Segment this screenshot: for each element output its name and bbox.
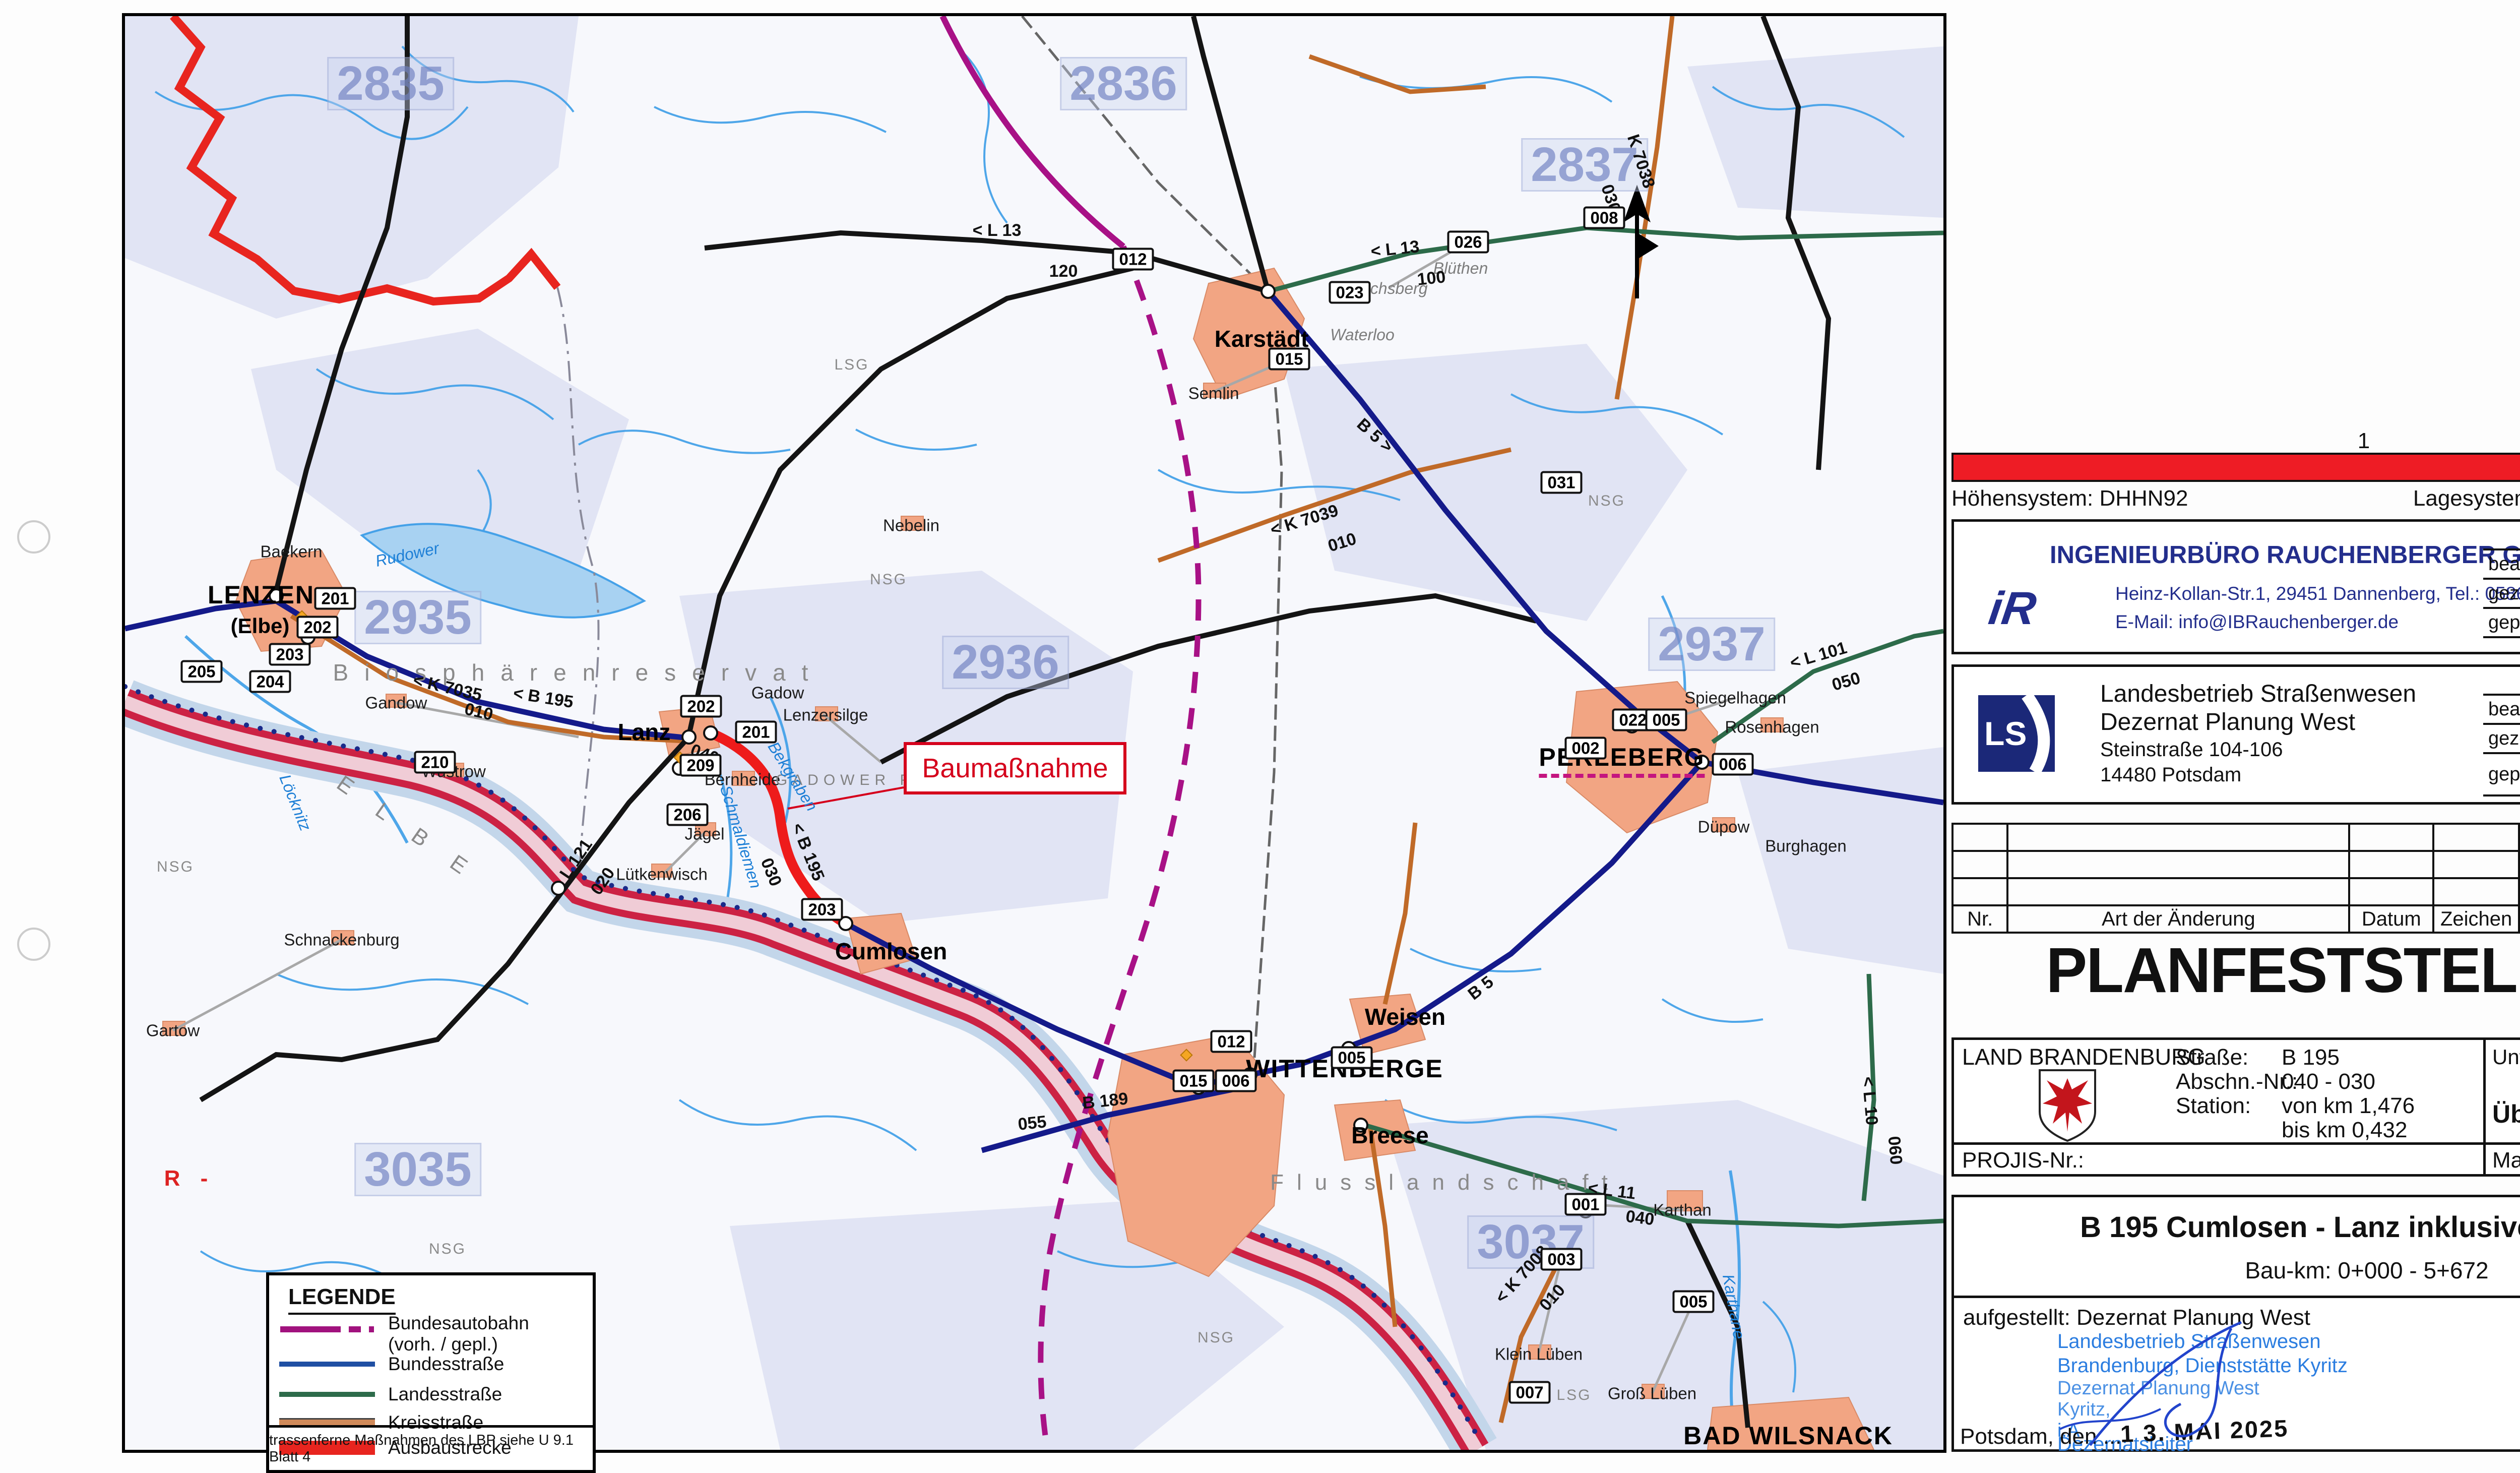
wat-label: Rudower (374, 540, 440, 569)
road-station-shield: 015 (1172, 1070, 1214, 1092)
rev-header-nr: Nr. (1952, 905, 2007, 933)
road-station-shield: 201 (735, 721, 777, 744)
nsg-label: NSG (870, 572, 907, 587)
village-label: Spiegelhagen (1684, 690, 1786, 706)
grid-label: 2835 (327, 57, 454, 110)
road-station-shield: 015 (1268, 348, 1310, 371)
authority-sign-table: Datum Name Unterschrift bearbeitet gezei… (2483, 664, 2520, 796)
land-label: LAND BRANDENBURG (1962, 1044, 2206, 1070)
area3-label: E L B E (333, 772, 481, 885)
road-station-shield: 204 (249, 670, 291, 693)
road-station-shield: 008 (1583, 207, 1625, 229)
authority-line4: 14480 Potsdam (2100, 764, 2241, 786)
empty-cell (2349, 851, 2433, 878)
road-station-shield: 005 (1672, 1291, 1714, 1313)
redmark-label: R - (164, 1168, 215, 1190)
table-row: geprüft 5/25 (2483, 753, 2520, 795)
table-row: Datum Name Unterschrift (2483, 520, 2520, 549)
road-station-shield: 012 (1210, 1030, 1252, 1053)
legend-item-bundesstrasse: Bundesstraße (279, 1354, 582, 1374)
town-label: Weisen (1365, 1005, 1445, 1028)
empty-cell (2349, 824, 2433, 851)
village-label: Baekern (261, 543, 323, 560)
map-type-label: Übersichtskarte (2492, 1099, 2520, 1129)
engineer-email: E-Mail: info@IBRauchenberger.de (2115, 611, 2399, 633)
authority-line1: Landesbetrieb Straßenwesen (2100, 680, 2416, 708)
caps2-label: (Elbe) (231, 616, 290, 637)
road-station-shield: 209 (679, 754, 721, 777)
engineer-company-name: INGENIEURBÜRO RAUCHENBERGER GmbH (2050, 541, 2520, 569)
road-label: 100 (1416, 268, 1446, 288)
bundesstrasse-line-sample (279, 1362, 375, 1367)
caps-label: LENZEN (208, 582, 314, 607)
road-station-shield: 012 (1112, 248, 1154, 271)
wat-label: Karthane (1720, 1273, 1747, 1340)
nsg-label: NSG (1198, 1330, 1235, 1345)
hole-punch (17, 520, 50, 554)
road-label: B 5 (1465, 973, 1497, 1003)
station-bis-value: bis km 0,432 (2282, 1118, 2407, 1143)
table-row: gezeichnet 14.03.2025 Sie (2483, 579, 2520, 608)
empty-cell (2483, 520, 2520, 549)
coordinate-systems-row: Höhensystem: DHHN92 Lagesystem: ETRS89 /… (1951, 486, 2520, 516)
village-label: Lütkenwisch (616, 866, 708, 883)
station-von-value: von km 1,476 (2282, 1093, 2415, 1119)
road-label: 010 (1536, 1281, 1568, 1314)
nsg-label: NSG (1588, 494, 1625, 509)
road-station-shield: 210 (414, 751, 456, 774)
engineer-sign-table: Datum Name Unterschrift bearbeitet 14.03… (2483, 519, 2520, 638)
table-row (1952, 824, 2519, 851)
village-label: Karthan (1653, 1202, 1712, 1218)
nsg-label: LSG (1556, 1388, 1591, 1403)
caps-label: BAD WILSNACK (1683, 1423, 1893, 1448)
town-label: Karstädt (1215, 327, 1309, 350)
road-label: < B 195 (512, 685, 575, 711)
map-labels-layer: KarstädtLanzCumlosenWeisenBreesePERLEBER… (125, 16, 1943, 1450)
map-legend: LEGENDE Bundesautobahn (vorh. / gepl.) B… (266, 1272, 596, 1473)
empty-cell (2433, 851, 2519, 878)
projis-label: PROJIS-Nr.: (1962, 1148, 2084, 1173)
table-row (1952, 851, 2519, 878)
village-label: Düpow (1698, 819, 1750, 835)
legend-item-autobahn: Bundesautobahn (vorh. / gepl.) (279, 1324, 582, 1344)
nsg-label: NSG (157, 860, 194, 875)
empty-cell (2007, 878, 2349, 905)
empty-cell (1952, 851, 2007, 878)
brandenburg-eagle-icon (2035, 1067, 2100, 1143)
village-label: Gadow (751, 685, 804, 701)
wat-label: Löcknitz (277, 772, 314, 833)
legend-label: Landesstraße (388, 1384, 502, 1405)
divider (2483, 1040, 2486, 1145)
road-label: 040 (1625, 1208, 1655, 1229)
table-row: geprüft 14.03.2025 Schl (2483, 608, 2520, 637)
area-label: Biosphärenreservat (333, 661, 825, 684)
legend-label: Bundesautobahn (vorh. / gepl.) (388, 1313, 582, 1355)
road-label: B 5 > (1354, 415, 1396, 456)
project-title-block: B 195 Cumlosen - Lanz inklusive Radweg B… (1951, 1195, 2520, 1301)
lagesystem-text: Lagesystem: ETRS89 / Zone 33 (2413, 486, 2520, 511)
road-label: < K 7039 (1269, 502, 1341, 538)
unterlage-label: Unterlage / Blatt-Nr.: (2492, 1045, 2520, 1069)
road-station-shield: 006 (1712, 753, 1753, 776)
revision-table: Nr. Art der Änderung Datum Zeichen (1951, 823, 2520, 934)
grid-label: 2836 (1060, 57, 1187, 110)
divider (2483, 1145, 2486, 1174)
station-label: Station: (2176, 1093, 2251, 1119)
road-station-shield: 203 (269, 643, 310, 666)
road-station-shield: 005 (1331, 1047, 1372, 1069)
town-label: Breese (1351, 1124, 1428, 1147)
authority-line2: Dezernat Planung West (2100, 708, 2355, 736)
town-label: Lanz (618, 720, 671, 744)
row-label: geprüft (2483, 753, 2520, 795)
village-label: Gandow (365, 695, 427, 711)
road-label: B 189 (1082, 1090, 1129, 1112)
grid-label: 2936 (942, 636, 1069, 689)
road-station-shield: 006 (1215, 1070, 1256, 1092)
table-row (1952, 878, 2519, 905)
road-label: < L 10 (1859, 1076, 1880, 1126)
nsg-label: NSG (429, 1242, 466, 1257)
table-row: gezeichnet (2483, 724, 2520, 753)
empty-cell (2483, 665, 2520, 695)
baumassnahme-callout: Baumaßnahme (904, 742, 1126, 794)
village-label: Gartow (146, 1022, 200, 1039)
table-row: bearbeitet (2483, 695, 2520, 724)
engineer-block: INGENIEURBÜRO RAUCHENBERGER GmbH iR Hein… (1951, 519, 2520, 654)
row-label: bearbeitet (2483, 695, 2520, 724)
legend-item-landesstrasse: Landesstraße (279, 1384, 582, 1404)
road-label: 010 (463, 700, 495, 723)
legend-title: LEGENDE (288, 1284, 396, 1315)
town-label: Cumlosen (835, 940, 947, 963)
road-station-shield: 005 (1645, 709, 1687, 731)
table-row: bearbeitet 14.03.2025 Schl (2483, 549, 2520, 579)
road-label: 060 (1885, 1135, 1905, 1165)
empty-cell (2433, 878, 2519, 905)
project-block: LAND BRANDENBURG Straße: B 195 Abschn.-N… (1951, 1037, 2520, 1147)
villageg-label: Waterloo (1330, 327, 1394, 343)
strasse-label: Straße: (2176, 1045, 2248, 1070)
rev-header-art: Art der Änderung (2007, 905, 2349, 933)
abschnitt-value: 040 - 030 (2282, 1069, 2375, 1094)
road-label: 020 (588, 865, 618, 898)
road-station-shield: 206 (666, 804, 708, 826)
strasse-value: B 195 (2282, 1045, 2340, 1070)
village-label: Semlin (1188, 385, 1239, 402)
road-station-shield: 007 (1508, 1381, 1550, 1404)
road-station-shield: 202 (680, 695, 722, 718)
village-label: Groß Lüben (1608, 1385, 1696, 1402)
legend-footnote: trassenferne Maßnahmen des LBP siehe U 9… (269, 1425, 593, 1470)
road-label: L 121 (557, 836, 595, 882)
rev-header-datum: Datum (2349, 905, 2433, 933)
grid-label: 2935 (354, 591, 481, 644)
empty-cell (1952, 878, 2007, 905)
village-label: Klein Lüben (1495, 1346, 1583, 1363)
approval-signature (2030, 1313, 2332, 1448)
empty-cell (2433, 824, 2519, 851)
road-station-shield: 003 (1540, 1248, 1582, 1271)
road-label: 055 (1017, 1113, 1047, 1133)
road-station-shield: 203 (801, 898, 843, 921)
hole-punch (17, 928, 50, 961)
village-label: Burghagen (1765, 838, 1846, 854)
row-label: gezeichnet (2483, 724, 2520, 753)
empty-cell (2349, 878, 2433, 905)
road-label: < L 13 (973, 222, 1022, 239)
nsg-label: LSG (834, 357, 869, 373)
road-label: 050 (1830, 669, 1862, 694)
rev-header-zeichen: Zeichen (2433, 905, 2519, 933)
road-label: 010 (1326, 530, 1358, 555)
grid-label: 3035 (354, 1143, 481, 1196)
hoehensystem-text: Höhensystem: DHHN92 (1951, 486, 2188, 511)
page-number: 1 (2328, 428, 2399, 454)
baumassnahme-label: Baumaßnahme (922, 753, 1108, 784)
row-label: bearbeitet (2483, 549, 2520, 579)
massstab-label: Maßstab: (2492, 1148, 2520, 1173)
row-label: gezeichnet (2483, 579, 2520, 608)
road-label: < L 13 (1370, 238, 1420, 260)
village-label: Nebelin (883, 517, 939, 534)
road-station-shield: 002 (1564, 737, 1606, 760)
road-station-shield: 023 (1329, 281, 1370, 304)
empty-cell (2007, 824, 2349, 851)
road-station-shield: 202 (296, 616, 338, 639)
capsU-label: PERLEBERG (1539, 745, 1705, 778)
area3-label: Flusslandschaft (1270, 1172, 1621, 1194)
table-row: Datum Name Unterschrift (2483, 665, 2520, 695)
abschnitt-label: Abschn.-Nr.: (2176, 1069, 2298, 1094)
grid-label: 2937 (1648, 618, 1775, 671)
wat-label: Schmaldiemen (718, 783, 764, 890)
village-label: Jägel (685, 826, 725, 842)
project-title-line1: B 195 Cumlosen - Lanz inklusive Radweg (1954, 1210, 2520, 1244)
project-title-line2: Bau-km: 0+000 - 5+672 (1954, 1257, 2520, 1284)
road-station-shield: 205 (180, 660, 222, 683)
road-station-shield: 201 (314, 587, 356, 610)
landesstrasse-line-sample (279, 1392, 375, 1397)
table-row: Nr. Art der Änderung Datum Zeichen (1952, 905, 2519, 933)
row-label: geprüft (2483, 608, 2520, 637)
village-label: Rosenhagen (1725, 719, 1819, 735)
empty-cell (2007, 851, 2349, 878)
authority-block: LS Landesbetrieb Straßenwesen Dezernat P… (1951, 664, 2520, 805)
document-title: PLANFESTSTELLUNG (1964, 934, 2520, 1007)
authority-line3: Steinstraße 104-106 (2100, 739, 2283, 761)
road-label: < L 101 (1788, 639, 1849, 672)
engineer-logo: iR (1986, 582, 2040, 635)
village-label: Lenzersilge (783, 707, 868, 723)
projis-row: PROJIS-Nr.: Maßstab: 1 : 100.000 (1951, 1142, 2520, 1177)
road-station-shield: 031 (1540, 471, 1582, 494)
approval-block: aufgestellt: Dezernat Planung West Lande… (1951, 1296, 2520, 1452)
road-label: < B 195 (789, 821, 827, 883)
village-label: Schnackenburg (284, 932, 399, 948)
red-marker-bar (1951, 453, 2520, 482)
empty-cell (1952, 824, 2007, 851)
road-station-shield: 026 (1447, 231, 1489, 254)
overview-map: KarstädtLanzCumlosenWeisenBreesePERLEBER… (122, 13, 1946, 1453)
ls-logo: LS (1978, 695, 2055, 772)
engineer-address: Heinz-Kollan-Str.1, 29451 Dannenberg, Te… (2115, 583, 2520, 604)
road-label: 120 (1049, 263, 1078, 280)
legend-label: Bundesstraße (388, 1354, 504, 1375)
road-station-shield: 001 (1564, 1193, 1606, 1216)
